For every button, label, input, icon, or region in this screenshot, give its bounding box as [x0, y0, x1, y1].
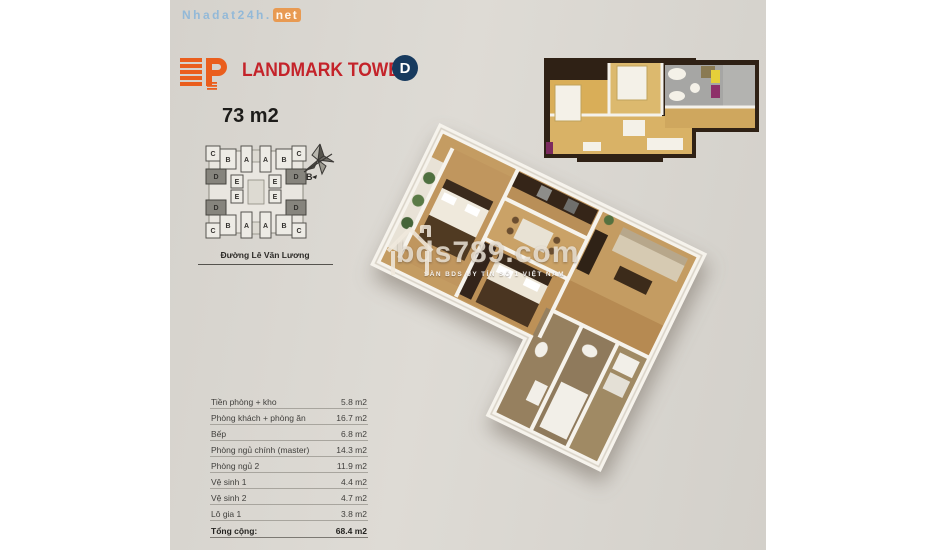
table-row: Phòng ngủ 211.9 m2 — [210, 457, 368, 473]
svg-text:D: D — [213, 205, 218, 212]
svg-text:D: D — [213, 174, 218, 181]
svg-text:C: C — [210, 151, 215, 158]
street-label: Đường Lê Văn Lương — [195, 250, 335, 260]
project-title: LANDMARK TOWER — [242, 60, 413, 82]
unit-badge: D — [392, 55, 418, 81]
svg-text:E: E — [273, 179, 278, 186]
table-row: Tiền phòng + kho5.8 m2 — [210, 393, 368, 409]
watermark-subtext: SÀN BDS UY TÍN SỐ 1 VIỆT NAM — [424, 271, 612, 278]
page: Nhadat24h.net LANDMARK TOWER D 73 m2 C B — [0, 0, 936, 550]
apartment-area: 73 m2 — [222, 105, 279, 128]
svg-text:C: C — [210, 228, 215, 235]
svg-text:D: D — [293, 205, 298, 212]
svg-text:A: A — [244, 223, 249, 230]
svg-text:E: E — [235, 179, 240, 186]
room-label: Phòng khách + phòng ăn — [211, 413, 306, 423]
svg-text:B: B — [225, 223, 230, 230]
room-area-value: 11.9 m2 — [337, 461, 367, 471]
room-area-value: 4.4 m2 — [341, 477, 367, 487]
street-line — [198, 264, 333, 265]
developer-logo-icon — [178, 52, 238, 96]
svg-text:A: A — [263, 157, 268, 164]
room-label: Phòng ngủ 2 — [211, 461, 259, 471]
watermark: bds789.com SÀN BDS UY TÍN SỐ 1 VIỆT NAM — [382, 236, 612, 278]
table-row: Phòng ngủ chính (master)14.3 m2 — [210, 441, 368, 457]
room-label: Vệ sinh 2 — [211, 493, 246, 503]
floor-plan-3d — [331, 122, 708, 474]
room-label: Tiền phòng + kho — [211, 397, 277, 407]
room-area-value: 5.8 m2 — [341, 397, 367, 407]
room-label: Lô gia 1 — [211, 509, 241, 519]
room-area-value: 6.8 m2 — [341, 429, 367, 439]
room-label: Vệ sinh 1 — [211, 477, 246, 487]
site-credit: Nhadat24h.net — [182, 8, 301, 22]
room-area-table: Tiền phòng + kho5.8 m2 Phòng khách + phò… — [210, 393, 368, 538]
svg-text:E: E — [235, 194, 240, 201]
room-label: Phòng ngủ chính (master) — [211, 445, 309, 455]
room-area-value: 16.7 m2 — [336, 413, 367, 423]
svg-text:B: B — [306, 172, 313, 182]
mini-floor-plan-2d — [543, 54, 761, 162]
table-row: Bếp6.8 m2 — [210, 425, 368, 441]
svg-text:E: E — [273, 194, 278, 201]
total-label: Tổng cộng: — [211, 526, 257, 536]
svg-text:A: A — [244, 157, 249, 164]
watermark-house-icon — [384, 221, 436, 281]
svg-text:B: B — [281, 223, 286, 230]
room-label: Bếp — [211, 429, 226, 439]
compass-north-icon: B — [298, 142, 338, 188]
table-total-row: Tổng cộng:68.4 m2 — [210, 521, 368, 538]
site-name: Nhadat24h. — [182, 8, 272, 22]
total-value: 68.4 m2 — [336, 526, 367, 536]
svg-text:C: C — [296, 228, 301, 235]
building-site-plan: C B A A B C D E E D E E D D C B A A B C — [204, 144, 308, 240]
svg-text:A: A — [263, 223, 268, 230]
svg-text:B: B — [281, 157, 286, 164]
table-row: Lô gia 13.8 m2 — [210, 505, 368, 521]
flyer-background: Nhadat24h.net LANDMARK TOWER D 73 m2 C B — [170, 0, 766, 550]
room-area-value: 4.7 m2 — [341, 493, 367, 503]
svg-text:B: B — [225, 157, 230, 164]
table-row: Vệ sinh 24.7 m2 — [210, 489, 368, 505]
table-row: Vệ sinh 14.4 m2 — [210, 473, 368, 489]
table-row: Phòng khách + phòng ăn16.7 m2 — [210, 409, 368, 425]
site-suffix: net — [273, 8, 302, 22]
room-area-value: 3.8 m2 — [341, 509, 367, 519]
room-area-value: 14.3 m2 — [336, 445, 367, 455]
